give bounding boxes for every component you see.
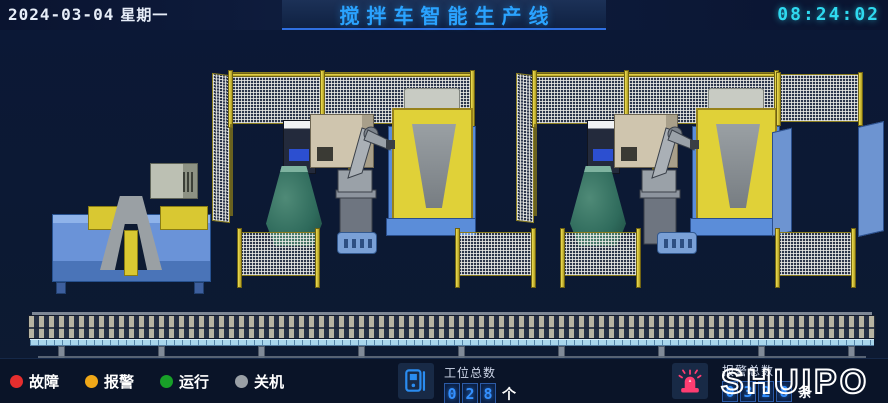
fence-post <box>532 70 537 128</box>
fence-rail <box>229 73 474 77</box>
platform-leg <box>56 282 66 294</box>
date-text: 2024-03-04 <box>8 5 114 24</box>
digit: 8 <box>480 383 496 403</box>
fence-post <box>455 228 460 288</box>
right-clamp <box>160 206 208 230</box>
station-total-unit: 个 <box>502 384 516 403</box>
company-logo: SHUIPO <box>704 359 886 403</box>
fence-mesh <box>239 232 319 276</box>
drum-rim <box>583 166 612 172</box>
fence-post <box>560 228 565 288</box>
running-status-dot <box>160 375 173 388</box>
lower-safety-fence <box>455 228 537 292</box>
controller-screen <box>593 149 613 161</box>
legend-item-running: 运行 <box>160 371 209 392</box>
fence-post <box>775 228 780 288</box>
fence-leg <box>534 124 537 216</box>
blue-panel <box>772 128 792 237</box>
fence-rail <box>533 73 778 77</box>
fence-post <box>851 228 856 288</box>
fence-post <box>237 228 242 288</box>
cart-detail <box>664 239 692 248</box>
fence-leg <box>230 124 233 216</box>
digit: 0 <box>444 383 460 403</box>
roller-conveyor <box>28 312 876 358</box>
fixture-station[interactable] <box>48 160 213 298</box>
station-total-digits: 0 2 8 个 <box>444 383 516 403</box>
station-total-counter: 工位总数 0 2 8 个 <box>444 364 516 403</box>
fence-post <box>858 72 863 126</box>
legend-label: 关机 <box>254 371 284 392</box>
platform-leg <box>194 282 204 294</box>
station-count-button[interactable] <box>398 363 434 399</box>
fence-mesh <box>562 232 640 276</box>
drum-support-cone <box>716 124 760 208</box>
transfer-cart <box>657 232 697 254</box>
mixer-truck-production-line-dashboard: 2024-03-04星期一 搅拌车智能生产线 08:24:02 <box>0 0 888 403</box>
fence-post <box>531 228 536 288</box>
legend-item-alarm: 报警 <box>85 371 134 392</box>
lower-safety-fence <box>237 228 321 292</box>
fence-post <box>228 70 233 128</box>
weekday-text: 星期一 <box>120 7 168 24</box>
off-status-dot <box>235 375 248 388</box>
drum-support-cone <box>412 124 456 208</box>
control-box <box>150 163 198 199</box>
fence-mesh <box>777 232 855 276</box>
alarm-count-button[interactable] <box>672 363 708 399</box>
conveyor-rail <box>30 339 874 346</box>
lower-safety-fence <box>560 228 642 292</box>
device-icon <box>401 366 431 396</box>
vent-grille <box>183 172 193 192</box>
logo-text: SHUIPO <box>721 363 869 401</box>
status-legend: 故障 报警 运行 关机 <box>10 359 284 403</box>
conveyor-rollers <box>28 315 876 339</box>
alarm-status-dot <box>85 375 98 388</box>
lower-safety-fence <box>775 228 857 292</box>
page-title: 搅拌车智能生产线 <box>333 0 556 29</box>
transfer-cart <box>337 232 377 254</box>
blue-panel <box>858 121 884 237</box>
center-clamp <box>124 230 138 276</box>
fence-mesh <box>457 232 535 276</box>
positioner-frame <box>696 108 777 220</box>
legend-label: 故障 <box>29 371 59 392</box>
current-date: 2024-03-04星期一 <box>8 4 168 25</box>
legend-item-fault: 故障 <box>10 371 59 392</box>
safety-fence-top <box>778 74 862 122</box>
digit: 2 <box>462 383 478 403</box>
fence-post <box>776 72 781 126</box>
fence-post <box>636 228 641 288</box>
station-total-label: 工位总数 <box>444 364 516 381</box>
positioner-frame <box>392 108 473 220</box>
header-bar: 2024-03-04星期一 搅拌车智能生产线 08:24:02 <box>0 0 888 30</box>
controller-screen <box>289 149 309 161</box>
cart-detail <box>344 239 372 248</box>
fault-status-dot <box>10 375 23 388</box>
current-time: 08:24:02 <box>777 4 880 25</box>
legend-label: 运行 <box>179 371 209 392</box>
fence-post <box>315 228 320 288</box>
siren-icon <box>675 366 705 396</box>
title-panel: 搅拌车智能生产线 <box>282 0 606 30</box>
drum-rim <box>279 166 308 172</box>
status-bar: 故障 报警 运行 关机 工位总数 <box>0 358 888 403</box>
positioner-base <box>690 218 780 236</box>
legend-item-off: 关机 <box>235 371 284 392</box>
legend-label: 报警 <box>104 371 134 392</box>
